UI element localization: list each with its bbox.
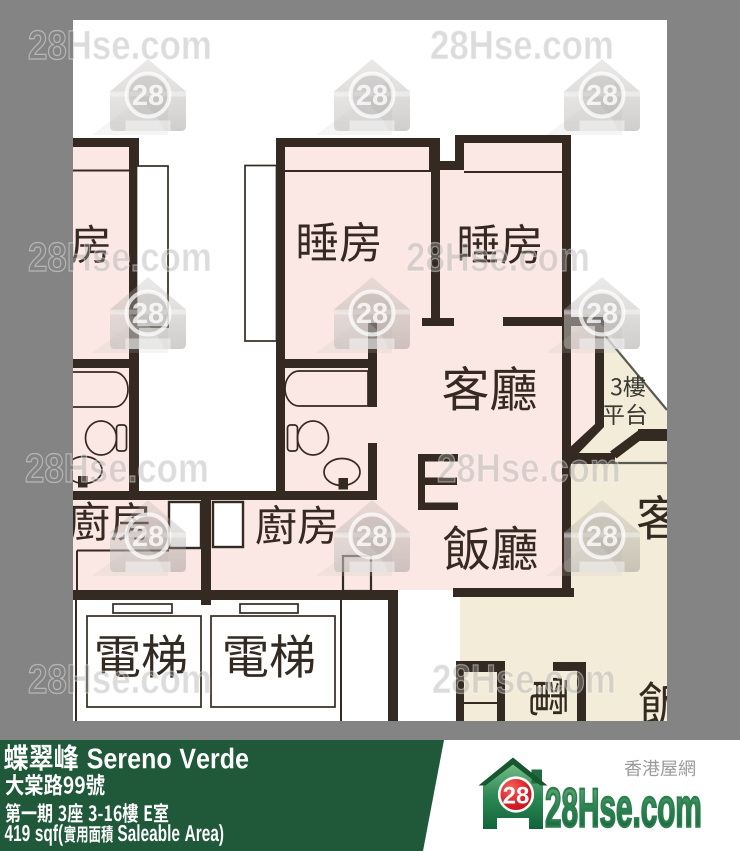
svg-text:28: 28 (503, 783, 530, 810)
svg-text:28Hse.com: 28Hse.com (545, 778, 702, 839)
